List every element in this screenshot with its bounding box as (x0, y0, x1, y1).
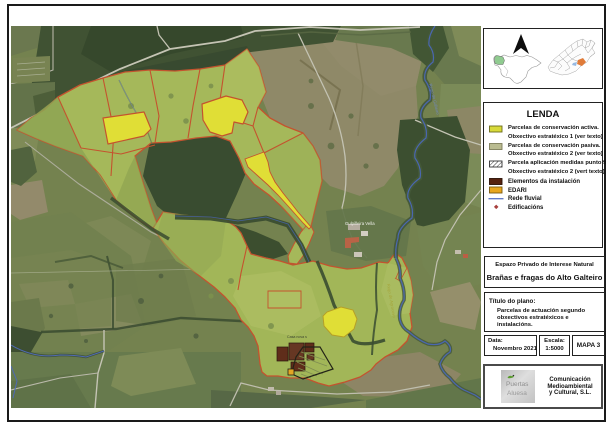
svg-text:Casa nova s: Casa nova s (287, 335, 307, 339)
svg-text:Aluesa: Aluesa (507, 390, 527, 397)
svg-text:Gulpilleira Vella: Gulpilleira Vella (345, 221, 375, 226)
svg-text:Puertas: Puertas (506, 381, 529, 388)
